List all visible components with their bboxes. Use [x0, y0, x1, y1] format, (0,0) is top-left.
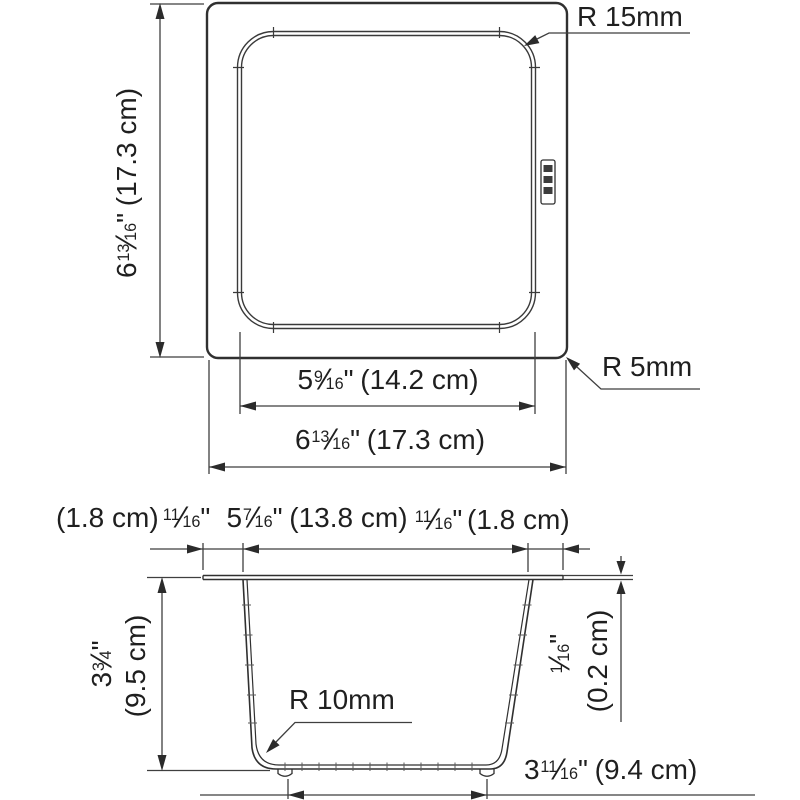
flange-left-metric-label: (1.8 cm): [56, 504, 159, 532]
arrowhead: [512, 545, 528, 554]
outer-corner-radius-label: R 5mm: [602, 353, 692, 381]
arrowhead: [519, 402, 535, 411]
depth-dim-label: 33⁄4": [88, 640, 116, 687]
franke-logo-icon: [541, 160, 555, 204]
rim-tangent-ticks: [233, 27, 540, 333]
arrowhead: [158, 755, 167, 771]
thickness-dim-metric-label: (0.2 cm): [584, 610, 612, 713]
flange-profile: [203, 576, 563, 580]
arrowhead: [617, 581, 626, 595]
depth-dim-metric-label: (9.5 cm): [122, 615, 150, 718]
technical-drawing: 613⁄16"(17.3 cm) R 15mm R 5mm 59⁄16"(14.…: [0, 0, 800, 800]
arrowhead: [471, 791, 487, 800]
arrowhead: [563, 545, 579, 554]
basin-inner-profile: [247, 580, 529, 766]
flange-left-dim-label: 11⁄16": [162, 504, 210, 532]
bottom-width-dim-label: 311⁄16"(9.4 cm): [524, 756, 697, 784]
arrowhead: [288, 791, 304, 800]
bottom-radius-label: R 10mm: [289, 686, 395, 714]
arrowhead: [240, 402, 256, 411]
r10-leader-line: [276, 723, 412, 743]
arrowhead: [158, 577, 167, 593]
arrowhead: [524, 35, 539, 46]
top-view: [150, 3, 700, 474]
thickness-dim-label: 1⁄16": [546, 634, 574, 675]
basin-outer-profile: [243, 580, 533, 770]
r15-leader-line: [537, 33, 690, 39]
inner-corner-radius-label: R 15mm: [577, 3, 683, 31]
top-view-outer-outline: [207, 3, 567, 358]
top-width-dim-label: 57⁄16"(13.8 cm): [226, 504, 407, 532]
top-view-dimension-lines: [150, 4, 700, 474]
outer-width-dim-label: 613⁄16"(17.3 cm): [295, 426, 485, 454]
arrowhead: [617, 561, 626, 575]
basin-feet: [278, 769, 494, 776]
top-view-arrowheads: [156, 3, 581, 472]
arrowhead: [156, 342, 165, 358]
flange-right-metric-label: (1.8 cm): [467, 506, 570, 534]
height-dimension-line: [150, 4, 204, 357]
flange-right-dim-label: 11⁄16": [414, 506, 462, 534]
arrowhead: [156, 3, 165, 19]
top-width-dimension-line: [150, 543, 590, 572]
arrowhead: [187, 545, 203, 554]
cross-section-profile: [203, 576, 563, 777]
top-view-rim-outline: [238, 32, 536, 329]
arrowhead: [209, 463, 225, 472]
inner-width-dim-label: 59⁄16"(14.2 cm): [297, 366, 478, 394]
arrowhead: [550, 463, 566, 472]
height-dim-label: 613⁄16"(17.3 cm): [113, 88, 141, 278]
arrowhead: [243, 545, 259, 554]
